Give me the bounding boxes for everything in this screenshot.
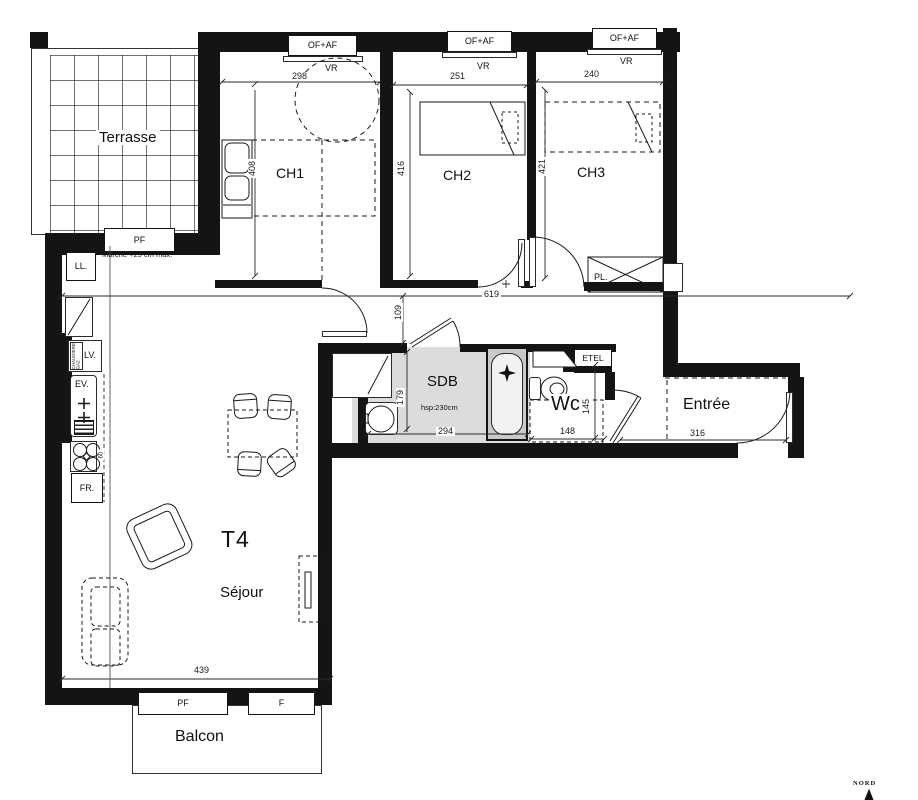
washing-machine-label: LL. [75, 262, 88, 271]
washing-machine: LL. [66, 252, 96, 281]
dim-sejour-width: 439 [192, 666, 211, 675]
dim-hall-depth: 109 [394, 303, 403, 322]
dishwasher-label: LV. [84, 351, 96, 360]
etel-closet: ETEL [574, 349, 612, 367]
door-arc-sdb [453, 321, 460, 347]
dim-worktop: 60 [98, 450, 104, 461]
room-label-ch2: CH2 [443, 168, 471, 182]
step-note: Marche +25 cm max. [102, 251, 172, 259]
window-ofaf-ch3: OF+AF [592, 28, 657, 49]
duct-box [663, 263, 683, 292]
wall-corner-block [30, 32, 48, 48]
window-ofaf-ch2: OF+AF [447, 31, 512, 52]
door-pf-terrasse: PF [104, 228, 175, 252]
room-label-entree: Entrée [683, 397, 730, 413]
wall-entree-top [663, 363, 800, 377]
sdb-counter-box [332, 353, 392, 398]
door-arc-ch1 [322, 288, 367, 333]
dim-ch1-width: 298 [290, 72, 309, 81]
door-arc-wc [613, 390, 641, 398]
door-leaf-entrance [786, 392, 793, 443]
room-label-ch1: CH1 [276, 166, 304, 180]
wall-right-top [663, 28, 677, 263]
window-sill-ch3 [587, 49, 662, 55]
dim-hall-width: 619 [482, 290, 501, 299]
dim-sdb-width: 294 [436, 427, 455, 436]
vr-label-ch2: VR [477, 62, 490, 71]
compass-north-label: NORD [853, 781, 876, 788]
door-leaf-wc [610, 396, 641, 443]
window-ofaf-ch1: OF+AF [288, 35, 357, 56]
toilet-cistern [529, 377, 541, 400]
window-sill-ch2 [442, 52, 517, 58]
ch3-bed [545, 102, 660, 152]
wall-sejour-right [318, 343, 332, 705]
door-leaf-ch2 [518, 239, 525, 287]
dim-ch3-width: 240 [582, 70, 601, 79]
dim-sdb-depth: 179 [396, 388, 405, 407]
ceiling-height-note: hsp:230cm [421, 404, 458, 412]
fridge-label: FR. [80, 484, 95, 493]
window-label: PF [177, 699, 189, 708]
wall-bottom-service [330, 443, 738, 458]
window-label: OF+AF [465, 37, 494, 46]
wall-ch1-bottom [215, 280, 322, 288]
north-arrow [865, 790, 873, 800]
wall-wc-right [605, 372, 615, 400]
door-leaf-sdb [410, 318, 453, 347]
etel-label: ETEL [582, 354, 603, 363]
wall-ch2-ch3 [527, 46, 536, 240]
window-label: OF+AF [610, 34, 639, 43]
sofa [82, 578, 128, 666]
dining-table [228, 393, 298, 479]
sink-drainer [74, 420, 94, 435]
window-sill-ch1 [283, 56, 363, 62]
wall-left-outer [45, 233, 62, 705]
door-arc-ch2 [478, 243, 522, 287]
balcon-outline [132, 705, 322, 774]
dim-wc-width: 148 [558, 427, 577, 436]
door-leaf-ch1 [322, 331, 367, 337]
wall-hall-a [380, 280, 478, 288]
window-label: OF+AF [308, 41, 337, 50]
cooktop [70, 441, 97, 472]
vr-label-ch3: VR [620, 57, 633, 66]
armchair [123, 501, 195, 573]
wall-hall-b [584, 282, 664, 291]
dim-entree-width: 316 [688, 429, 707, 438]
room-label-ch3: CH3 [577, 165, 605, 179]
window-f-balcon: F [248, 692, 315, 715]
room-label-sdb: SDB [427, 374, 458, 389]
ch1-wardrobe [252, 140, 375, 216]
vr-label-ch1: VR [325, 64, 338, 73]
apartment-type-label: T4 [221, 528, 250, 551]
window-pf-balcon: PF [138, 692, 228, 715]
room-label-sejour: Séjour [220, 585, 263, 600]
ch2-bed [420, 102, 525, 155]
sink-label: EV. [75, 380, 89, 389]
kitchen-cabinet [65, 297, 93, 337]
window-label: F [279, 699, 285, 708]
boiler-box: CHAUDIERE GAZ [70, 342, 83, 370]
dim-ch3-depth: 421 [538, 157, 547, 176]
room-label-balcon: Balcon [175, 729, 224, 745]
door-arc-entrance [737, 392, 790, 443]
room-label-terrasse: Terrasse [96, 130, 160, 145]
wall-ch1-ch2 [380, 50, 393, 288]
dim-wc-depth: 145 [582, 397, 591, 416]
door-arc-ch3 [532, 237, 584, 287]
pl-label: PL. [594, 273, 608, 282]
wall-terrasse-right [198, 32, 220, 255]
door-label: PF [134, 236, 146, 245]
dim-ch1-depth: 408 [248, 159, 257, 178]
door-leaf-ch3 [529, 237, 536, 287]
washbasin-box [365, 402, 398, 435]
room-label-wc: Wc [549, 394, 582, 414]
floor-plan: OF+AF OF+AF OF+AF PF PF F ETEL LL. LV. C… [0, 0, 918, 800]
fridge: FR. [71, 473, 103, 503]
boiler-label: CHAUDIERE GAZ [72, 343, 81, 370]
dim-ch2-depth: 416 [397, 159, 406, 178]
dim-ch2-width: 251 [448, 72, 467, 81]
bathtub-inner [491, 353, 523, 435]
wall-sdb-stub [320, 343, 407, 353]
